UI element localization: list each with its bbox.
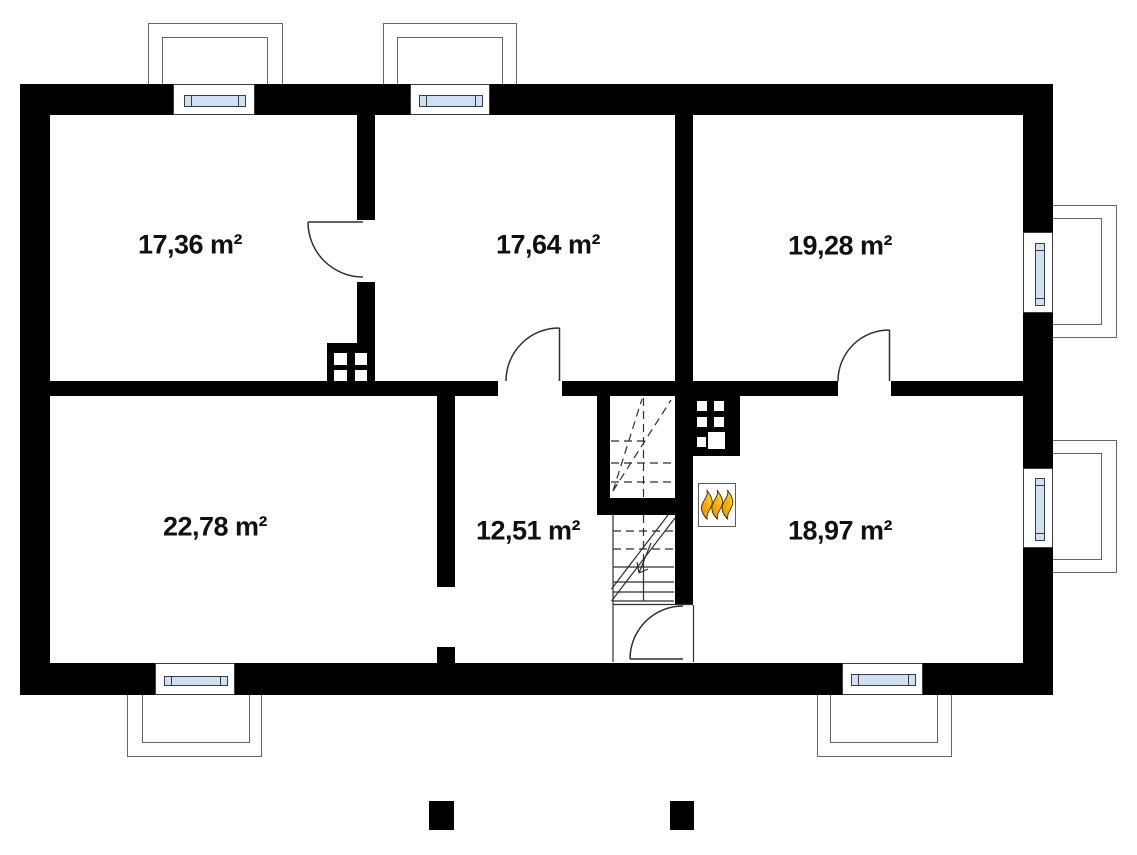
floor-plan: 17,36 m² 17,64 m² 19,28 m² 22,78 m² 12,5…	[0, 0, 1137, 855]
room-area-label: 22,78 m²	[163, 514, 267, 541]
room-area-label: 19,28 m²	[788, 233, 892, 260]
room-area-label: 17,64 m²	[496, 232, 600, 259]
flames-icon	[699, 484, 735, 526]
fireplace-icon	[698, 483, 736, 527]
room-area-label: 18,97 m²	[788, 518, 892, 545]
room-area-label: 12,51 m²	[476, 518, 580, 545]
room-area-label: 17,36 m²	[138, 232, 242, 259]
plan-linework	[0, 0, 1137, 855]
door-swing	[308, 222, 890, 659]
porch-pillar	[429, 801, 454, 830]
staircase	[611, 398, 694, 662]
porch-pillar	[670, 801, 694, 830]
